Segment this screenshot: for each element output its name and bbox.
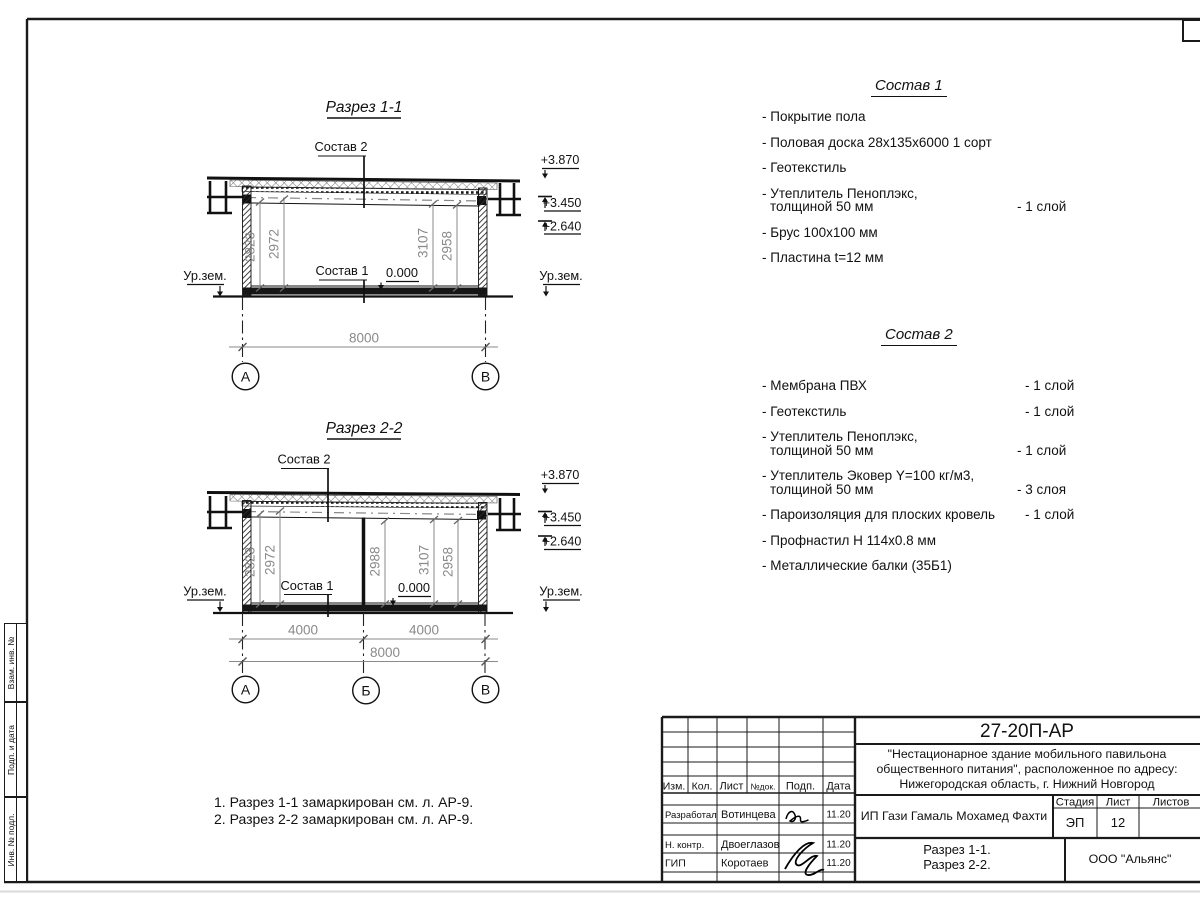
svg-text:11.20: 11.20 [826, 840, 851, 851]
svg-text:А: А [241, 369, 251, 385]
svg-text:0.000: 0.000 [398, 580, 430, 595]
axis-bubble-b: В [472, 363, 499, 390]
list-item: - Брус 100х100 мм [762, 226, 1107, 240]
svg-text:Разработал: Разработал [665, 810, 717, 821]
project-name-line2: общественного питания", расположенное по… [876, 762, 1177, 776]
signature-1 [786, 812, 809, 822]
side-cell-vzam: Взам. инв. № [4, 623, 27, 702]
svg-text:+3.450: +3.450 [543, 511, 582, 525]
svg-text:4000: 4000 [288, 623, 318, 638]
svg-text:А: А [241, 682, 251, 698]
title-block: 27-20П-АР "Нестационарное здание мобильн… [662, 717, 1200, 882]
axis-lines [243, 613, 486, 677]
svg-text:Ур.зем.: Ур.зем. [183, 584, 226, 599]
ground-label-right: Ур.зем. [539, 268, 582, 297]
axis-bubble-b: Б [353, 677, 380, 704]
svg-text:Состав 2: Состав 2 [314, 139, 367, 154]
sostav2-callout: Состав 2 [277, 452, 330, 523]
ground-label-right: Ур.зем. [539, 584, 582, 613]
svg-text:+3.870: +3.870 [541, 153, 580, 167]
svg-text:Листов: Листов [1153, 797, 1190, 809]
note-line-1: 1. Разрез 1-1 замаркирован см. л. АР-9. [214, 794, 473, 811]
sostav2-callout: Состав 2 [314, 139, 367, 208]
svg-text:№док.: №док. [751, 782, 776, 792]
axis-bubble-a: А [232, 676, 259, 703]
svg-text:Лист: Лист [720, 781, 744, 793]
signature-2 [785, 843, 824, 875]
svg-text:В: В [481, 682, 490, 698]
project-name-line3: Нижегородская область, г. Нижний Новгоро… [899, 777, 1154, 791]
svg-text:Лист: Лист [1106, 797, 1131, 809]
doc-number: 27-20П-АР [980, 721, 1074, 742]
total-dimension: 8000 [229, 331, 498, 352]
svg-text:0.000: 0.000 [386, 265, 418, 280]
svg-text:+2.640: +2.640 [543, 535, 582, 549]
dim-2972: 2972 [263, 545, 278, 575]
axis-bubble-c: В [472, 676, 499, 703]
svg-text:8000: 8000 [370, 645, 400, 660]
svg-text:+2.640: +2.640 [543, 220, 582, 234]
section1-title: Разрез 1-1 [326, 99, 403, 116]
list-item: - Утеплитель Эковер Y=100 кг/м3, толщино… [762, 469, 1107, 496]
section-1-1: Разрез 1-1 [183, 99, 582, 390]
side-label-podp: Подп. и дата [6, 724, 16, 774]
svg-text:Подп.: Подп. [786, 781, 815, 793]
materials-list-1: - Покрытие пола - Половая доска 28х135х6… [762, 110, 1107, 277]
dim-2823: 2823 [243, 547, 258, 577]
svg-text:Кол.: Кол. [692, 781, 713, 793]
project-name-line1: "Нестационарное здание мобильного павиль… [888, 747, 1167, 761]
svg-text:+3.870: +3.870 [541, 468, 580, 482]
svg-text:Коротаев: Коротаев [721, 858, 769, 870]
list-item: - Мембрана ПВХ- 1 слой [762, 379, 1107, 393]
svg-text:11.20: 11.20 [826, 810, 851, 821]
svg-text:Дата: Дата [826, 781, 851, 793]
svg-text:Состав 1: Состав 1 [280, 578, 333, 593]
materials-list-2: - Мембрана ПВХ- 1 слой - Геотекстиль- 1 … [762, 379, 1107, 585]
side-label-vzam: Взам. инв. № [6, 636, 16, 689]
svg-text:Состав 1: Состав 1 [315, 263, 368, 278]
sheet-subject-line2: Разрез 2-2. [923, 857, 990, 872]
dim-2823: 2823 [243, 232, 258, 262]
svg-text:В: В [481, 369, 490, 385]
svg-text:+3.450: +3.450 [543, 196, 582, 210]
company-name: ООО "Альянс" [1089, 852, 1172, 866]
list-item: - Утеплитель Пеноплэкс, толщиной 50 мм- … [762, 187, 1107, 214]
svg-text:Вотинцева: Вотинцева [721, 809, 776, 821]
side-cell-divider [16, 624, 17, 701]
sheet-subject-line1: Разрез 1-1. [923, 842, 990, 857]
dim-3107: 3107 [417, 545, 432, 575]
list-item: - Металлические балки (35Б1) [762, 559, 1107, 573]
elevation-marks: +3.870 +3.450 +2.640 [538, 153, 581, 234]
svg-text:Ур.зем.: Ур.зем. [539, 268, 582, 283]
list-item: - Профнастил Н 114х0.8 мм [762, 534, 1107, 548]
list-item: - Половая доска 28х135х6000 1 сорт [762, 136, 1107, 150]
drawing-sheet: { "drawing": { "section1": { "title": "Р… [0, 0, 1200, 900]
list-item: - Покрытие пола [762, 110, 1107, 124]
dim-3107: 3107 [416, 228, 431, 258]
svg-text:Стадия: Стадия [1056, 797, 1095, 809]
side-cell-divider [16, 703, 17, 796]
dim-2958: 2958 [441, 547, 456, 577]
svg-text:Б: Б [361, 683, 370, 699]
stage-grid: Стадия Лист Листов ЭП 12 [1056, 797, 1190, 831]
notes: 1. Разрез 1-1 замаркирован см. л. АР-9. … [214, 794, 473, 829]
ground-label-left: Ур.зем. [183, 584, 226, 613]
list-item: - Пароизоляция для плоских кровель- 1 сл… [762, 508, 1107, 522]
sostav1-title: Состав 1 [871, 77, 947, 97]
side-label-inv: Инв. № подл. [6, 813, 16, 866]
side-cell-podp: Подп. и дата [4, 702, 27, 797]
list-item: - Пластина t=12 мм [762, 251, 1107, 265]
section-2-2: Разрез 2-2 Ур [183, 420, 582, 704]
dim-2958: 2958 [440, 231, 455, 261]
frame-corner-box [1183, 20, 1200, 41]
svg-text:Двоеглазов: Двоеглазов [721, 839, 780, 851]
axis-bubble-a: А [232, 363, 259, 390]
list-item: - Геотекстиль [762, 161, 1107, 175]
svg-text:Ур.зем.: Ур.зем. [183, 268, 226, 283]
side-cell-divider [16, 798, 17, 881]
svg-text:Состав 2: Состав 2 [277, 452, 330, 467]
zero-level-mark: 0.000 [390, 580, 431, 606]
svg-text:4000: 4000 [409, 623, 439, 638]
svg-text:Н. контр.: Н. контр. [665, 840, 704, 851]
svg-text:ЭП: ЭП [1066, 815, 1085, 830]
list-item: - Геотекстиль- 1 слой [762, 405, 1107, 419]
svg-text:ГИП: ГИП [665, 858, 686, 870]
section2-title: Разрез 2-2 [326, 420, 403, 437]
side-cell-inv: Инв. № подл. [4, 797, 27, 882]
axis-lines [243, 297, 486, 362]
note-line-2: 2. Разрез 2-2 замаркирован см. л. АР-9. [214, 811, 473, 828]
ground-label-left: Ур.зем. [183, 268, 226, 297]
list-item: - Утеплитель Пеноплэкс, толщиной 50 мм- … [762, 430, 1107, 457]
floor-slab [243, 286, 487, 295]
sostav2-title: Состав 2 [881, 326, 957, 346]
roof-assembly [207, 493, 520, 520]
svg-text:Изм.: Изм. [663, 781, 686, 793]
dim-2988: 2988 [368, 546, 383, 576]
elevation-marks: +3.870 +3.450 +2.640 [538, 468, 581, 550]
svg-text:11.20: 11.20 [826, 858, 851, 869]
svg-text:12: 12 [1111, 815, 1125, 830]
dim-2972: 2972 [267, 229, 282, 259]
client-name: ИП Гази Гамаль Мохамед Фахти [861, 809, 1048, 823]
svg-text:8000: 8000 [349, 331, 379, 346]
svg-text:Ур.зем.: Ур.зем. [539, 584, 582, 599]
